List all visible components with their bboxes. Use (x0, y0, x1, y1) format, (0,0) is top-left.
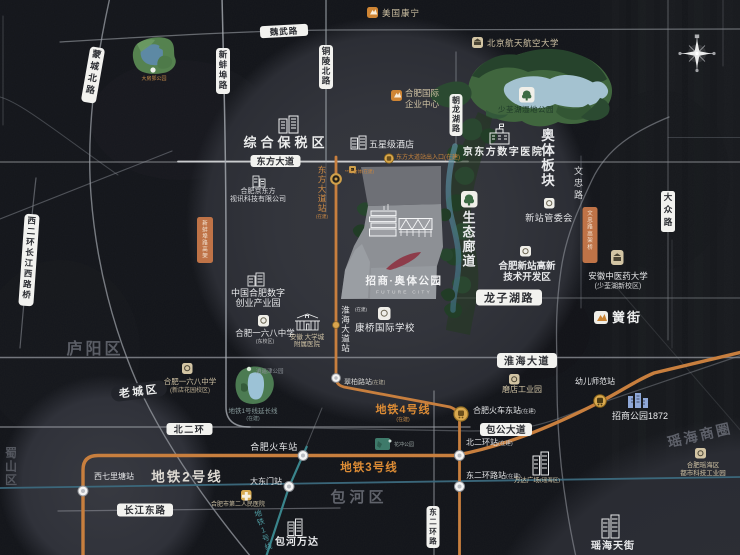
svg-text:逍遥津公园: 逍遥津公园 (256, 367, 284, 375)
svg-text:(在建): (在建) (246, 415, 260, 422)
svg-text:淮海大道: 淮海大道 (504, 354, 550, 367)
svg-text:康桥国际学校: 康桥国际学校 (355, 322, 415, 334)
svg-text:(新店花园校区): (新店花园校区) (170, 386, 210, 394)
svg-text:大东门站: 大东门站 (250, 476, 282, 486)
svg-text:东二环路: 东二环路 (429, 507, 437, 546)
svg-text:京东方数字医院: 京东方数字医院 (463, 145, 544, 158)
svg-text:淮海大道站: 淮海大道站 (341, 305, 350, 353)
svg-text:黉街: 黉街 (612, 310, 642, 325)
svg-text:东方大道站出入口(在建): 东方大道站出入口(在建) (396, 153, 460, 161)
svg-text:文忠路: 文忠路 (574, 165, 583, 200)
svg-text:幼儿师范站: 幼儿师范站 (575, 376, 615, 386)
svg-text:地铁3号线: 地铁3号线 (340, 460, 397, 474)
svg-text:创业产业园: 创业产业园 (235, 297, 280, 308)
svg-text:安徽中医药大学: 安徽中医药大学 (588, 271, 648, 281)
svg-text:地铁1号线延长线: 地铁1号线延长线 (228, 406, 278, 415)
svg-text:长江东路: 长江东路 (124, 505, 166, 517)
svg-text:北二环: 北二环 (174, 423, 206, 434)
svg-text:新蚌埠路高架: 新蚌埠路高架 (202, 219, 208, 260)
svg-text:合肥市第二人民医院: 合肥市第二人民医院 (211, 500, 265, 508)
svg-text:都市科技工业园: 都市科技工业园 (680, 468, 726, 477)
svg-text:合肥瑶海区: 合肥瑶海区 (687, 460, 720, 469)
svg-text:奥体板块: 奥体板块 (541, 127, 555, 188)
svg-text:FUTURE CITY: FUTURE CITY (376, 290, 432, 296)
svg-text:中国合肥数字: 中国合肥数字 (231, 287, 285, 298)
svg-text:合肥国际: 合肥国际 (405, 88, 440, 98)
svg-text:(少荃湖新校区): (少荃湖新校区) (595, 281, 642, 290)
svg-text:新蚌埠路: 新蚌埠路 (219, 50, 228, 91)
svg-text:合肥火车站: 合肥火车站 (250, 441, 298, 452)
svg-text:少荃湖湿地公园: 少荃湖湿地公园 (498, 104, 554, 114)
svg-text:铜陵北路: 铜陵北路 (322, 46, 331, 85)
svg-text:招商·奥体公园: 招商·奥体公园 (366, 274, 443, 287)
svg-text:东方大道站: 东方大道站 (318, 165, 327, 213)
svg-text:庐阳区: 庐阳区 (66, 339, 123, 358)
svg-text:磨店工业园: 磨店工业园 (502, 384, 542, 394)
svg-text:西七里塘站: 西七里塘站 (94, 471, 134, 481)
svg-text:企业中心: 企业中心 (405, 99, 440, 109)
svg-text:视讯科技有限公司: 视讯科技有限公司 (230, 194, 286, 203)
svg-text:五星级酒店: 五星级酒店 (369, 139, 414, 150)
svg-text:龙子湖路: 龙子湖路 (483, 291, 534, 305)
svg-text:合肥京东方: 合肥京东方 (241, 186, 276, 195)
svg-text:朝龙湖路: 朝龙湖路 (451, 95, 461, 133)
svg-text:瑶海天街: 瑶海天街 (591, 539, 635, 552)
svg-text:新站管委会: 新站管委会 (525, 212, 573, 223)
svg-text:**综合体(在建): **综合体(在建) (345, 168, 375, 175)
svg-text:大房郢公园: 大房郢公园 (141, 75, 166, 82)
svg-text:(在建): (在建) (316, 213, 328, 220)
svg-text:北京航天航空大学: 北京航天航空大学 (487, 38, 559, 48)
svg-text:综合保税区: 综合保税区 (243, 135, 328, 150)
svg-text:文忠路高架桥: 文忠路高架桥 (587, 209, 593, 251)
svg-text:(东校区): (东校区) (256, 338, 275, 345)
svg-text:魏武路: 魏武路 (269, 26, 299, 38)
svg-text:合肥新站高新: 合肥新站高新 (498, 260, 556, 272)
svg-text:地铁2号线: 地铁2号线 (151, 469, 223, 485)
svg-text:招商公园1872: 招商公园1872 (612, 410, 668, 421)
svg-text:花冲公园: 花冲公园 (394, 441, 414, 448)
svg-text:美国康宁: 美国康宁 (382, 8, 420, 18)
svg-text:大众路: 大众路 (664, 192, 673, 227)
svg-text:包公大道: 包公大道 (485, 424, 526, 436)
svg-text:合肥一六八中学: 合肥一六八中学 (164, 376, 217, 386)
svg-text:技术开发区: 技术开发区 (503, 271, 551, 283)
svg-text:安徽 大学城: 安徽 大学城 (290, 332, 325, 341)
svg-text:东方大道: 东方大道 (256, 155, 294, 166)
svg-text:(在建): (在建) (355, 306, 367, 313)
svg-text:附属医院: 附属医院 (294, 339, 321, 348)
svg-text:包河万达: 包河万达 (275, 535, 319, 548)
svg-text:合肥一六八中学: 合肥一六八中学 (235, 328, 295, 338)
svg-text:蜀山区: 蜀山区 (5, 446, 17, 487)
svg-text:生态廊道: 生态廊道 (462, 210, 475, 269)
svg-text:(在建): (在建) (396, 416, 410, 423)
svg-text:包河区: 包河区 (330, 488, 387, 506)
svg-text:地铁4号线: 地铁4号线 (375, 402, 430, 416)
